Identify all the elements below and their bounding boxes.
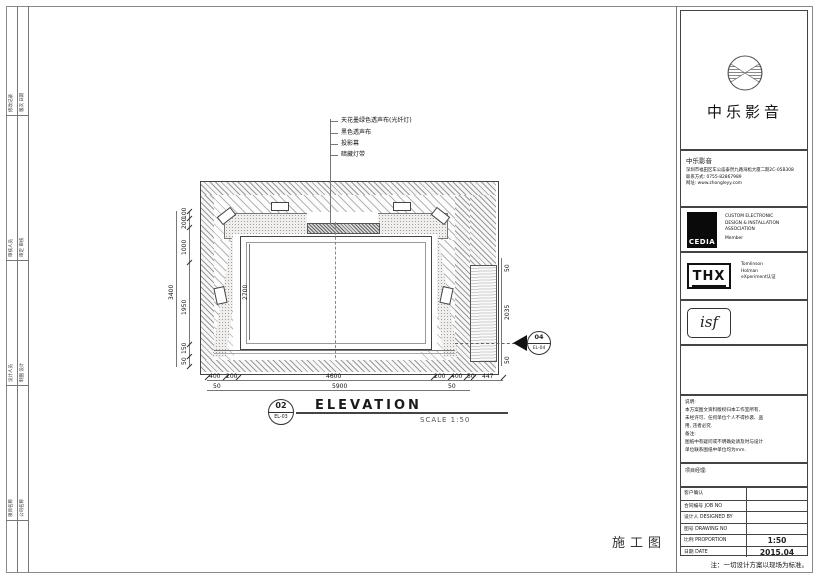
pm-label: 项目经理: [681, 464, 807, 474]
row-label: 日期 DATE [681, 547, 747, 558]
isf-logo-icon: isf [687, 308, 731, 338]
dim-line-screen-height [249, 244, 250, 340]
dim-bottom-447: 447 [482, 373, 493, 380]
dim-left-200: 200 [181, 218, 188, 229]
contact-web: 网址: www.zhongleyy.com [681, 181, 807, 188]
note-line: 备注: [685, 431, 803, 439]
dim-left-150: 150 [181, 343, 188, 354]
brand-name: 中乐影音 [681, 101, 809, 122]
table-row: 客户确认 [681, 488, 807, 500]
screen-inner-line [246, 242, 426, 344]
speaker-grille-strip [307, 223, 380, 234]
dim-screen-height: 2700 [242, 285, 249, 300]
drawing-scale: SCALE 1:50 [420, 416, 470, 424]
wall-hatch-right-upper [470, 195, 496, 265]
note-line: 未经许可、任何单位个人不得抄袭、盗 [685, 415, 803, 423]
floor-line-2 [214, 353, 455, 354]
strip-separator [6, 385, 28, 386]
cedia-logo-icon: CEDIA [687, 212, 717, 248]
note-line: 用, 违者必究. [685, 423, 803, 431]
leader-stub [330, 133, 338, 134]
dim-right-50-bottom: 50 [504, 356, 511, 364]
section-cut-line [455, 343, 515, 344]
fabric-panel-section [470, 265, 497, 362]
left-strip-divider [17, 6, 18, 572]
drawing-title: ELEVATION [315, 398, 422, 413]
dim-left-1000: 1000 [181, 240, 188, 255]
dim-bottom-400b: 400 [451, 373, 462, 380]
footer-note: 注：一切设计方案以现场为标准。 [676, 559, 808, 569]
drawing-sheet: 修改记录 版次 日期 审核人员 审定 审核 设计人员 制图 设计 项目名称 公司… [0, 0, 818, 578]
dim-left-50: 50 [181, 357, 188, 365]
leader-stub [330, 144, 338, 145]
row-label: 客户确认 [681, 488, 747, 500]
speaker-box [271, 202, 289, 211]
isf-box: isf [680, 300, 808, 345]
row-value-date: 2015.04 [747, 547, 807, 558]
callout-screen: 投影幕 [341, 140, 359, 147]
section-marker-bubble: 04 EL-04 [527, 331, 551, 355]
callout-black-cloth: 黑色透声布 [341, 129, 371, 136]
brand-box: 中乐影音 [680, 10, 808, 150]
title-block-border [676, 6, 677, 572]
contact-address: 深圳市福田区车公庙泰然九路海松大厦二期2C-05B308 [681, 168, 807, 175]
dim-total-50-left: 50 [213, 383, 221, 390]
dim-right-2035: 2035 [504, 305, 511, 320]
thx-logo-text: THX [693, 269, 726, 284]
dim-bottom-200a: 200 [226, 373, 237, 380]
cedia-line: CUSTOM ELECTRONIC [725, 214, 779, 221]
dim-bottom-400a: 400 [209, 373, 220, 380]
dim-line-left-total [176, 211, 177, 367]
section-marker-number: 04 [528, 332, 550, 344]
table-row: 图号 DRAWING NO [681, 523, 807, 535]
row-value [747, 524, 807, 535]
strip-label: 审定 审核 [19, 238, 25, 257]
row-label: 比例 PROPORTION [681, 535, 747, 546]
strip-label: 制图 设计 [19, 363, 25, 382]
floor-line [214, 350, 455, 351]
strip-separator [6, 115, 28, 116]
strip-separator [6, 520, 28, 521]
contact-company: 中乐影音 [681, 151, 807, 168]
wall-hatch-right [455, 195, 470, 360]
band-notch [307, 212, 378, 223]
dim-line-bottom-total [207, 390, 470, 391]
callout-ceiling-cloth: 天花墨绿色透声布(光纤灯) [341, 117, 412, 124]
table-row: 日期 DATE 2015.04 [681, 546, 807, 558]
thx-box: THX Tomlinson Holman eXperiment认证 [680, 252, 808, 300]
left-strip-border [28, 6, 29, 572]
dim-bottom-200b: 200 [434, 373, 445, 380]
cedia-line: Member [725, 236, 779, 243]
dim-total-50-right: 50 [448, 383, 456, 390]
dim-total-5900: 5900 [332, 383, 347, 390]
row-label: 合同编号 JOB NO [681, 501, 747, 512]
strip-label: 版次 日期 [19, 93, 25, 112]
cedia-logo-text: CEDIA [689, 236, 715, 248]
row-label: 图号 DRAWING NO [681, 524, 747, 535]
strip-label: 修改记录 [8, 94, 14, 112]
thx-logo-underline [692, 285, 726, 287]
dim-bottom-4600: 4600 [326, 373, 341, 380]
note-line: 说明: [685, 399, 803, 407]
stamp-label: 施工图 [612, 532, 666, 551]
strip-label: 设计人员 [8, 364, 14, 382]
title-bubble: 02 EL-03 [268, 399, 294, 425]
note-line: 单位联系图纸中单位均为mm. [685, 447, 803, 455]
pm-box: 项目经理: [680, 463, 808, 487]
table-row: 设计人 DESIGNED BY [681, 511, 807, 523]
notes-box: 说明: 本方案图文资料版权归本工作室所有, 未经许可、任何单位个人不得抄袭、盗 … [680, 395, 808, 463]
leader-stub [330, 121, 338, 122]
contact-box: 中乐影音 深圳市福田区车公庙泰然九路海松大厦二期2C-05B308 联系方式: … [680, 150, 808, 207]
centerline [335, 222, 336, 358]
row-value [747, 512, 807, 523]
cedia-box: CEDIA CUSTOM ELECTRONIC DESIGN & INSTALL… [680, 207, 808, 252]
info-table: 客户确认 合同编号 JOB NO 设计人 DESIGNED BY 图号 DRAW… [680, 487, 808, 556]
leader-stub [330, 155, 338, 156]
dim-right-50-top: 50 [504, 264, 511, 272]
strip-label: 公司名称 [19, 499, 25, 517]
strip-label: 项目名称 [8, 499, 14, 517]
strip-label: 审核人员 [8, 239, 14, 257]
cedia-line: ASSOCIATION [725, 227, 779, 234]
row-label: 设计人 DESIGNED BY [681, 512, 747, 523]
dim-left-total: 3400 [168, 285, 175, 300]
section-marker-sheet: EL-04 [528, 344, 550, 354]
note-line: 图纸中有疑问或不明确处请及时与设计 [685, 439, 803, 447]
leader-line [330, 119, 331, 225]
row-value-scale: 1:50 [747, 535, 807, 546]
dim-bottom-50: 50 [467, 373, 475, 380]
wall-hatch-bottom [201, 360, 496, 372]
section-arrow [513, 335, 527, 351]
callout-light-strip: 暗藏灯带 [341, 151, 365, 158]
title-bubble-number: 02 [269, 400, 293, 413]
title-bubble-sheet: EL-03 [269, 413, 293, 423]
thx-line: eXperiment认证 [741, 275, 776, 282]
dim-line-right [501, 258, 502, 366]
dim-line-bottom-chain [207, 380, 503, 381]
thx-logo-icon: THX [687, 263, 731, 289]
note-line: 本方案图文资料版权归本工作室所有, [685, 407, 803, 415]
table-row: 比例 PROPORTION 1:50 [681, 534, 807, 546]
isf-logo-text: isf [700, 313, 718, 331]
strip-separator [6, 260, 28, 261]
dim-left-1950: 1950 [181, 300, 188, 315]
brand-logo-icon [725, 53, 765, 93]
project-box [680, 345, 808, 395]
table-row: 合同编号 JOB NO [681, 500, 807, 512]
speaker-box [393, 202, 411, 211]
row-value [747, 488, 807, 500]
row-value [747, 501, 807, 512]
wall-hatch-top [201, 182, 496, 195]
wall-hatch-left [201, 195, 214, 360]
